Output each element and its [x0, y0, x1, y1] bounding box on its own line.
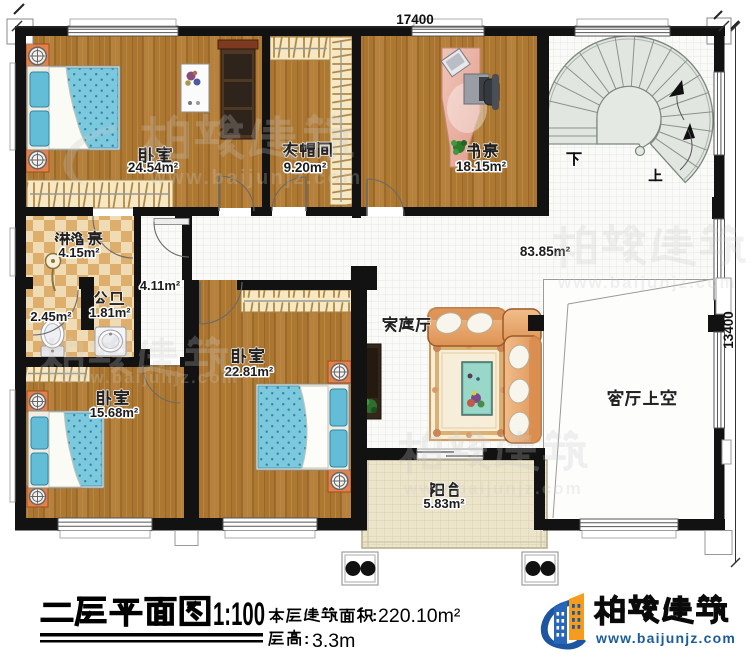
- svg-text:www.baijunjz.com: www.baijunjz.com: [557, 273, 737, 292]
- svg-text:17400: 17400: [396, 12, 434, 27]
- svg-text:18.15m²: 18.15m²: [456, 159, 507, 174]
- svg-text:www.baijunjz.com: www.baijunjz.com: [59, 368, 239, 387]
- svg-text:www.baijunjz.com: www.baijunjz.com: [595, 630, 736, 646]
- svg-text:2.45m²: 2.45m²: [30, 309, 72, 324]
- svg-text:3.3m: 3.3m: [312, 630, 355, 652]
- svg-text:220.10m²: 220.10m²: [378, 605, 461, 627]
- svg-text:15.68m²: 15.68m²: [90, 405, 139, 420]
- svg-text:5.83m²: 5.83m²: [423, 496, 465, 511]
- svg-text::: :: [372, 608, 377, 625]
- svg-text:4.11m²: 4.11m²: [140, 278, 181, 293]
- svg-text:www.baijunjz.com: www.baijunjz.com: [149, 167, 363, 189]
- svg-text::: :: [304, 631, 309, 648]
- svg-text:13400: 13400: [721, 311, 736, 349]
- svg-text:4.15m²: 4.15m²: [58, 245, 100, 260]
- svg-text:1.81m²: 1.81m²: [89, 305, 131, 320]
- svg-text:1:100: 1:100: [213, 596, 265, 632]
- svg-text:www.baijunjz.com: www.baijunjz.com: [403, 479, 583, 498]
